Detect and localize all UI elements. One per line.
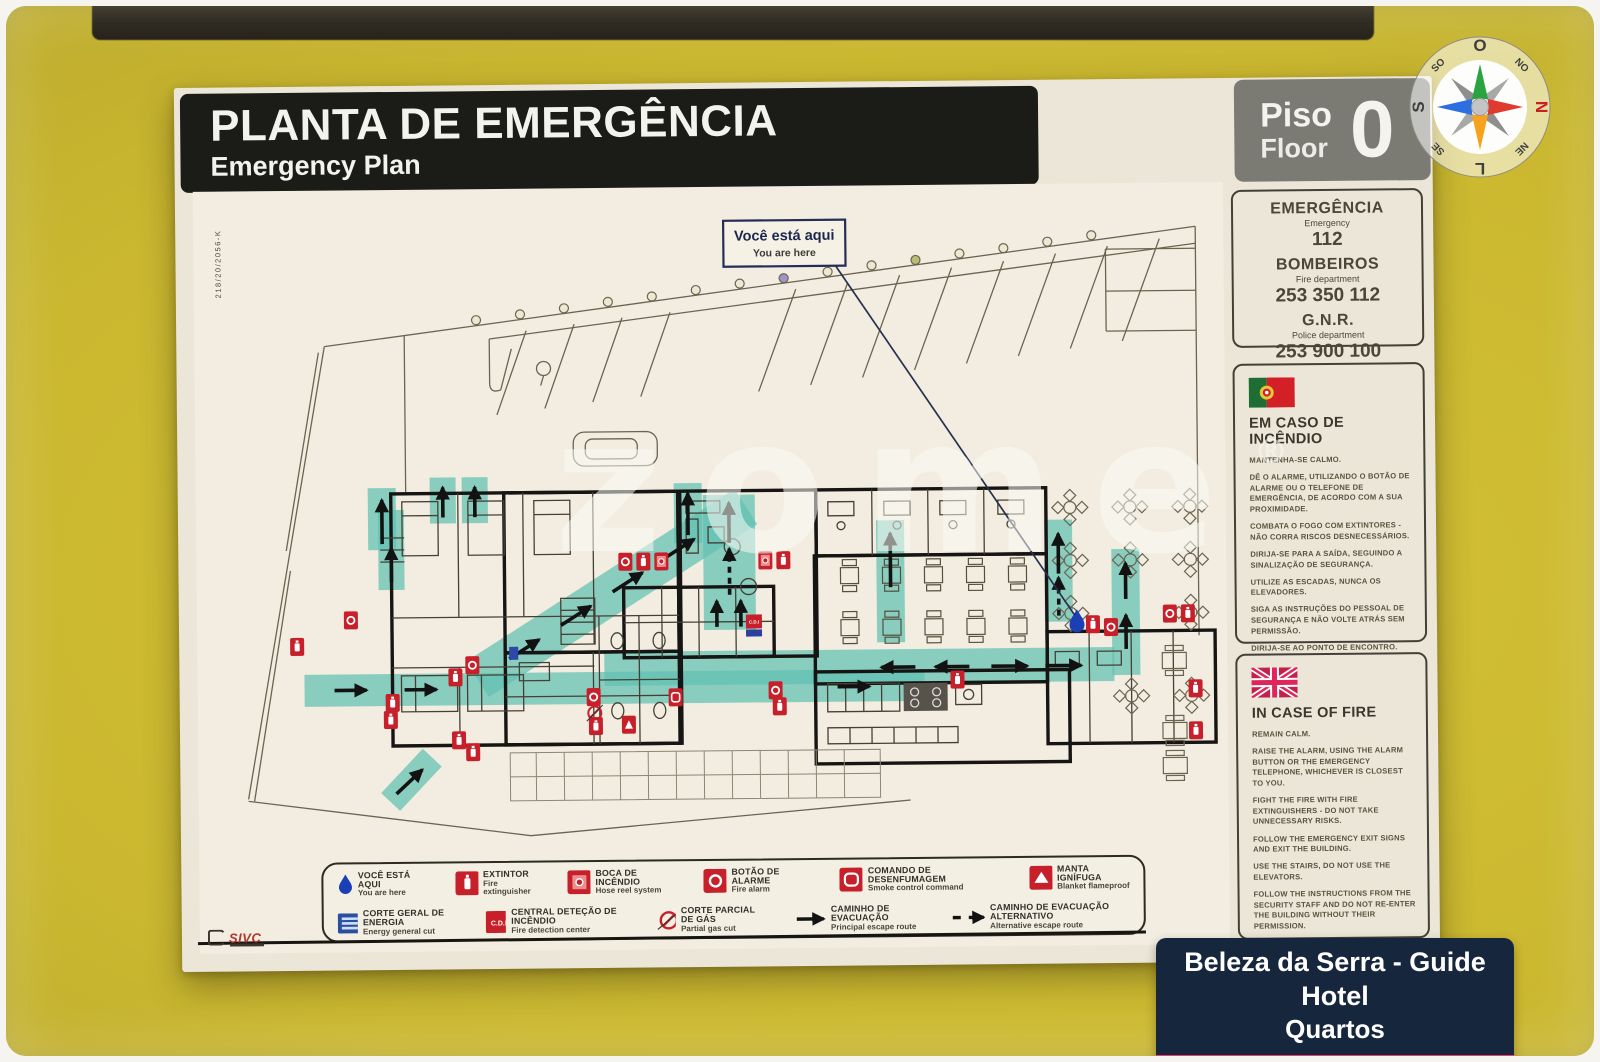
gas-cut-icon	[656, 908, 676, 932]
fire-instructions-en-box: IN CASE OF FIRE REMAIN CALM. RAISE THE A…	[1235, 652, 1430, 940]
stair-marker	[509, 647, 518, 660]
legend-label-en: Fire extinguisher	[483, 879, 545, 896]
alt-escape-route-arrow-icon	[949, 909, 985, 925]
legend-label-pt: CAMINHO DE EVACUAÇÃO ALTERNATIVO	[990, 902, 1134, 922]
legend-row-1: VOCÊ ESTÁ AQUIYou are here EXTINTORFire …	[337, 864, 1133, 898]
you-are-here-pointer	[836, 263, 1075, 617]
badge-accent-bar	[1156, 1055, 1514, 1057]
hose-reel-icon	[567, 871, 590, 895]
legend-item: BOCA DE INCÊNDIOHose reel system	[567, 868, 681, 896]
compass-rose: O N L S NO NE SE SO	[1402, 28, 1558, 186]
legend-label-pt: COMANDO DE DESENFUMAGEM	[868, 865, 1007, 885]
smoke-control-icon	[840, 868, 863, 892]
contact-name-en: Police department	[1234, 329, 1422, 341]
exterior-stair	[510, 749, 880, 801]
fire-extinguisher-icon	[455, 872, 478, 896]
instruction-step: MANTENHA-SE CALMO.	[1249, 454, 1411, 466]
portugal-flag-icon	[1249, 377, 1295, 407]
hotel-name-badge: Beleza da Serra - Guide Hotel Quartos	[1156, 938, 1514, 1056]
legend-label-en: Blanket flameproof	[1057, 882, 1133, 891]
floor-label-en: Floor	[1260, 134, 1332, 163]
legend-item: VOCÊ ESTÁ AQUIYou are here	[337, 871, 433, 899]
restaurant-tables	[840, 558, 1027, 644]
maker-logo: SIVC	[208, 929, 261, 946]
cdi-icon: C.D.I	[746, 614, 762, 636]
legend-label-en: Hose reel system	[596, 887, 682, 896]
floor-number: 0	[1350, 89, 1395, 169]
legend-item: CORTE PARCIAL DE GÁSPartial gas cut	[656, 906, 768, 934]
legend-item: CAMINHO DE EVACUAÇÃO ALTERNATIVOAlternat…	[949, 902, 1134, 931]
fire-blanket-icon	[1029, 866, 1052, 890]
alarm-button-icon	[703, 869, 726, 893]
instruction-step: FIGHT THE FIRE WITH FIRE EXTINGUISHERS -…	[1253, 794, 1415, 827]
escape-route-arrow-icon	[793, 910, 826, 926]
legend-label-en: Principal escape route	[831, 923, 923, 932]
compass-east-label: L	[1475, 159, 1485, 178]
emergency-plan-board: PLANTA DE EMERGÊNCIA Emergency Plan Piso…	[174, 76, 1440, 972]
cdi-icon: C.D.I	[486, 910, 506, 932]
instruction-step: COMBATA O FOGO COM EXTINTORES - NÃO CORR…	[1250, 520, 1412, 543]
instruction-step: DIRIJA-SE PARA A SAÍDA, SEGUINDO A SINAL…	[1250, 548, 1412, 571]
svg-text:C.D.I: C.D.I	[749, 619, 759, 624]
instruction-step: SIGA AS INSTRUÇÕES DO PESSOAL DE SEGURAN…	[1251, 604, 1413, 637]
contact-name-pt: EMERGÊNCIA	[1233, 200, 1421, 218]
legend-label-en: Fire alarm	[732, 885, 818, 894]
instruction-step: REMAIN CALM.	[1252, 728, 1414, 740]
contact-number: 112	[1233, 228, 1421, 252]
contact-number: 253 900 100	[1234, 340, 1422, 364]
legend-label-en: You are here	[358, 889, 433, 898]
route-arrows	[333, 481, 1128, 795]
emergency-contacts-box: EMERGÊNCIA Emergency 112 BOMBEIROS Fire …	[1231, 188, 1425, 348]
legend-label-en: Smoke control command	[868, 884, 1007, 894]
uk-flag-icon	[1251, 667, 1297, 697]
compass-south-label: S	[1409, 101, 1428, 112]
svg-text:C.D.I: C.D.I	[491, 920, 506, 927]
you-are-here-label-pt: Você está aqui	[734, 228, 835, 245]
energy-cut-icon	[338, 913, 358, 933]
contact-name-pt: G.N.R.	[1234, 312, 1422, 330]
page-title: PLANTA DE EMERGÊNCIA	[210, 96, 1038, 150]
instruction-step: USE THE STAIRS, DO NOT USE THE ELEVATORS…	[1253, 860, 1415, 883]
instruction-step: UTILIZE AS ESCADAS, NUNCA OS ELEVADORES.	[1251, 576, 1413, 599]
instruction-step: RAISE THE ALARM, USING THE ALARM BUTTON …	[1252, 745, 1414, 789]
legend-label-pt: CORTE PARCIAL DE GÁS	[681, 906, 768, 925]
fire-instructions-en-title: IN CASE OF FIRE	[1252, 704, 1414, 722]
legend-label-pt: BOTÃO DE ALARME	[731, 867, 817, 886]
legend-label-pt: MANTA IGNÍFUGA	[1057, 864, 1133, 883]
compass-west-label: O	[1473, 36, 1486, 55]
hotel-name: Beleza da Serra - Guide Hotel	[1166, 946, 1504, 1014]
title-banner: PLANTA DE EMERGÊNCIA Emergency Plan	[180, 86, 1039, 193]
fire-instructions-pt-box: EM CASO DE INCÊNDIO MANTENHA-SE CALMO. D…	[1232, 362, 1427, 644]
floor-label-pt: Piso	[1260, 98, 1332, 134]
ceiling-shadow-band	[92, 6, 1374, 40]
contact-name-en: Emergency	[1233, 217, 1421, 229]
you-are-here-callout: Você está aqui You are here	[723, 220, 845, 267]
legend-label-pt: CAMINHO DE EVACUAÇÃO	[831, 904, 924, 923]
legend-label-en: Partial gas cut	[681, 924, 768, 933]
legend-item: CORTE GERAL DE ENERGIAEnergy general cut	[338, 908, 461, 936]
legend-label-pt: CORTE GERAL DE ENERGIA	[363, 908, 460, 927]
legend-box: VOCÊ ESTÁ AQUIYou are here EXTINTORFire …	[321, 855, 1146, 943]
legend-label-pt: CENTRAL DETEÇÃO DE INCÊNDIO	[511, 907, 630, 927]
instruction-step: FOLLOW THE INSTRUCTIONS FROM THE SECURIT…	[1254, 888, 1416, 932]
legend-item: COMANDO DE DESENFUMAGEMSmoke control com…	[840, 865, 1007, 893]
contact-name-pt: BOMBEIROS	[1233, 256, 1421, 274]
you-are-here-label-en: You are here	[753, 247, 816, 260]
maker-logo-underline	[230, 943, 264, 946]
floor-plan: C.D.I Você está aqui You are here	[205, 190, 1221, 864]
compass-north-label: N	[1532, 101, 1551, 113]
hotel-area: Quartos	[1166, 1014, 1504, 1045]
legend-item: MANTA IGNÍFUGABlanket flameproof	[1029, 864, 1134, 892]
instruction-step: DÊ O ALARME, UTILIZANDO O BOTÃO DE ALARM…	[1250, 471, 1412, 515]
legend-item: C.D.I CENTRAL DETEÇÃO DE INCÊNDIOFire de…	[486, 907, 630, 935]
legend-label-pt: VOCÊ ESTÁ AQUI	[358, 871, 433, 890]
legend-label-en: Alternative escape route	[990, 920, 1134, 930]
photo-of-sign: PLANTA DE EMERGÊNCIA Emergency Plan Piso…	[6, 6, 1594, 1056]
legend-item: EXTINTORFire extinguisher	[455, 870, 546, 897]
fire-instructions-pt-title: EM CASO DE INCÊNDIO	[1249, 414, 1411, 448]
legend-label-en: Fire detection center	[511, 925, 630, 935]
maker-logo-icon	[208, 930, 226, 946]
page-subtitle: Emergency Plan	[210, 144, 1038, 183]
evacuation-routes	[303, 471, 1142, 803]
instruction-step: FOLLOW THE EMERGENCY EXIT SIGNS AND EXIT…	[1253, 833, 1415, 856]
contact-name-en: Fire department	[1234, 273, 1422, 285]
legend-label-pt: BOCA DE INCÊNDIO	[595, 868, 681, 887]
contact-number: 253 350 112	[1234, 284, 1422, 308]
you-are-here-drop-icon	[337, 874, 353, 896]
legend-item: CAMINHO DE EVACUAÇÃOPrincipal escape rou…	[793, 904, 923, 932]
legend-item: BOTÃO DE ALARMEFire alarm	[703, 867, 818, 895]
legend-label-en: Energy general cut	[363, 927, 460, 936]
